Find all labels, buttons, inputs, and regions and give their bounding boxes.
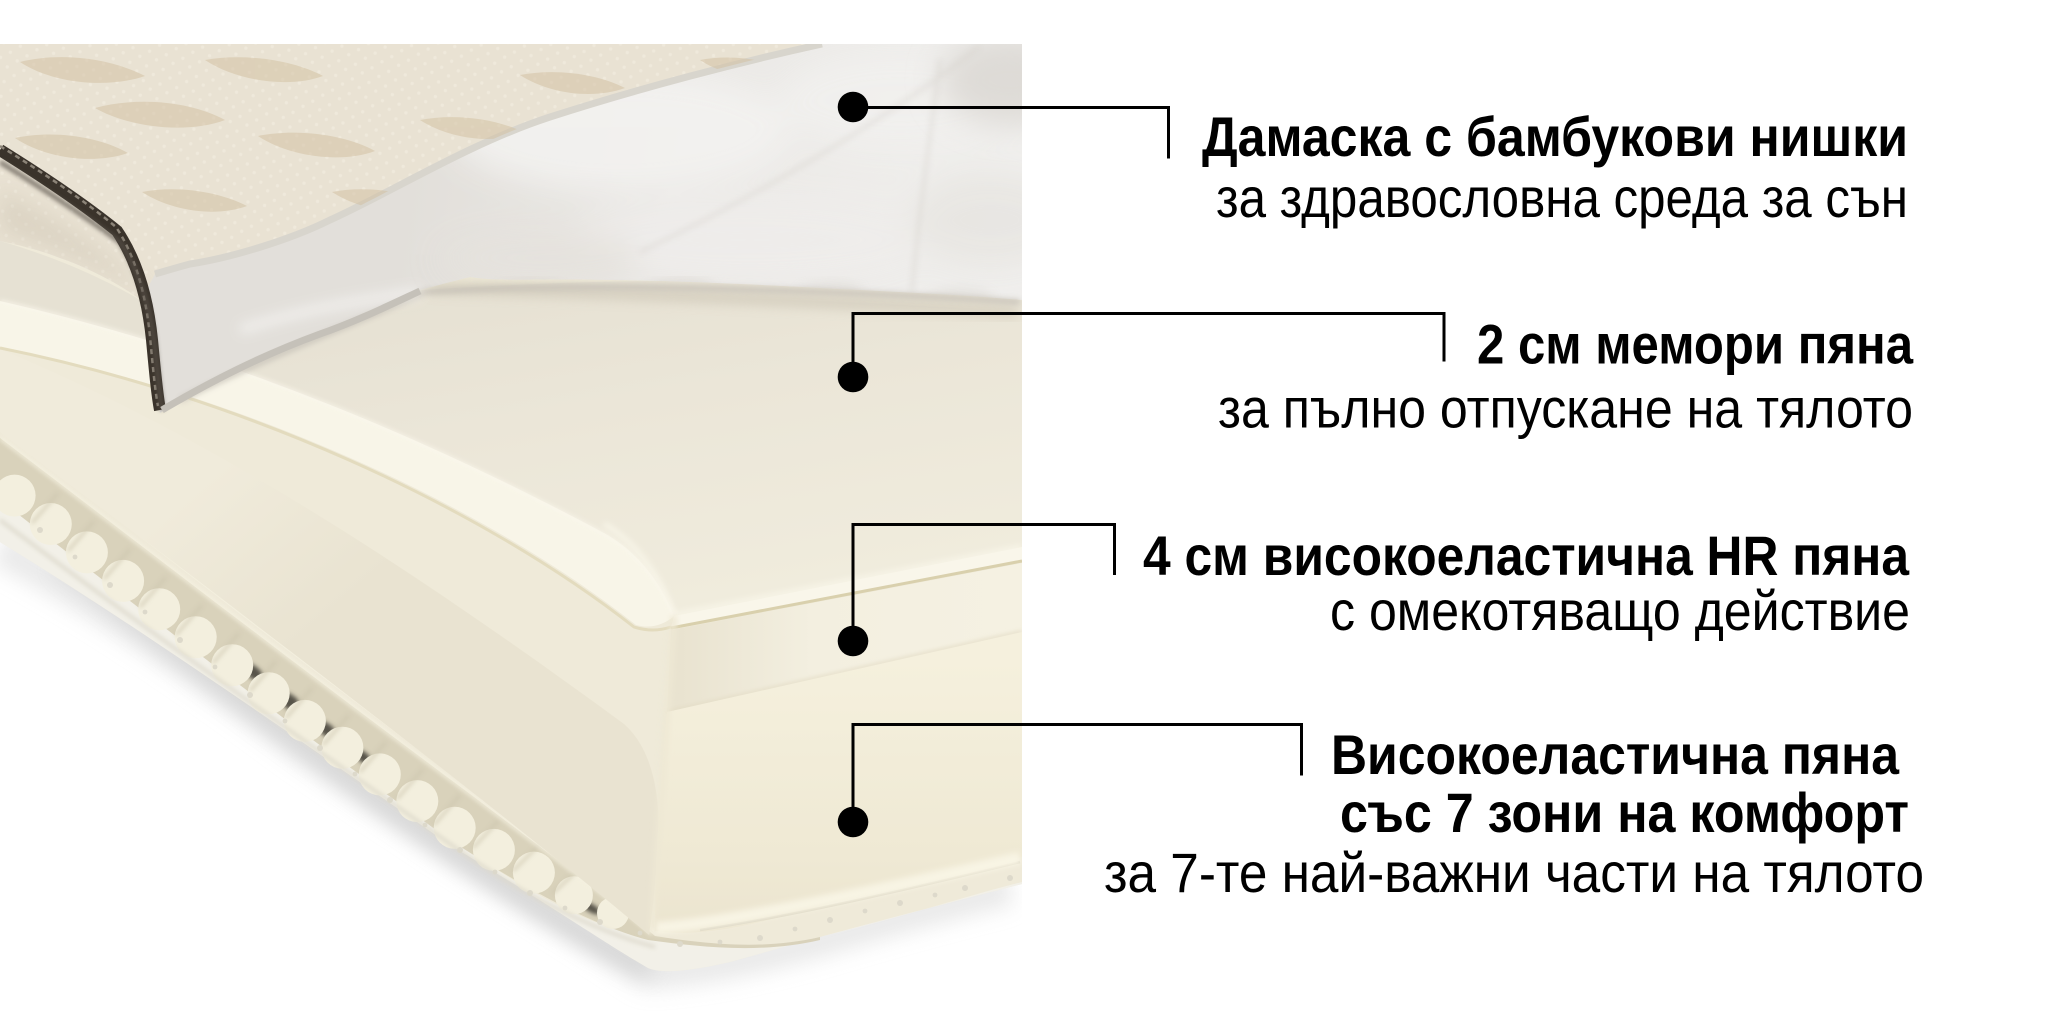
svg-text:за 7-те най-важни части на тял: за 7-те най-важни части на тялото	[1104, 841, 1924, 904]
svg-text:Дамаска с бамбукови нишки: Дамаска с бамбукови нишки	[1202, 105, 1908, 168]
svg-text:с омекотяващо действие: с омекотяващо действие	[1330, 579, 1910, 642]
svg-text:2 см мемори пяна: 2 см мемори пяна	[1477, 313, 1914, 376]
svg-text:със 7 зони на комфорт: със 7 зони на комфорт	[1340, 781, 1909, 844]
svg-text:за пълно отпускане на тялото: за пълно отпускане на тялото	[1218, 377, 1913, 440]
svg-text:Високоеластична пяна: Високоеластична пяна	[1331, 723, 1900, 786]
svg-text:4 см високоеластична HR пяна: 4 см високоеластична HR пяна	[1143, 524, 1910, 587]
svg-text:за здравословна среда за сън: за здравословна среда за сън	[1216, 166, 1908, 229]
